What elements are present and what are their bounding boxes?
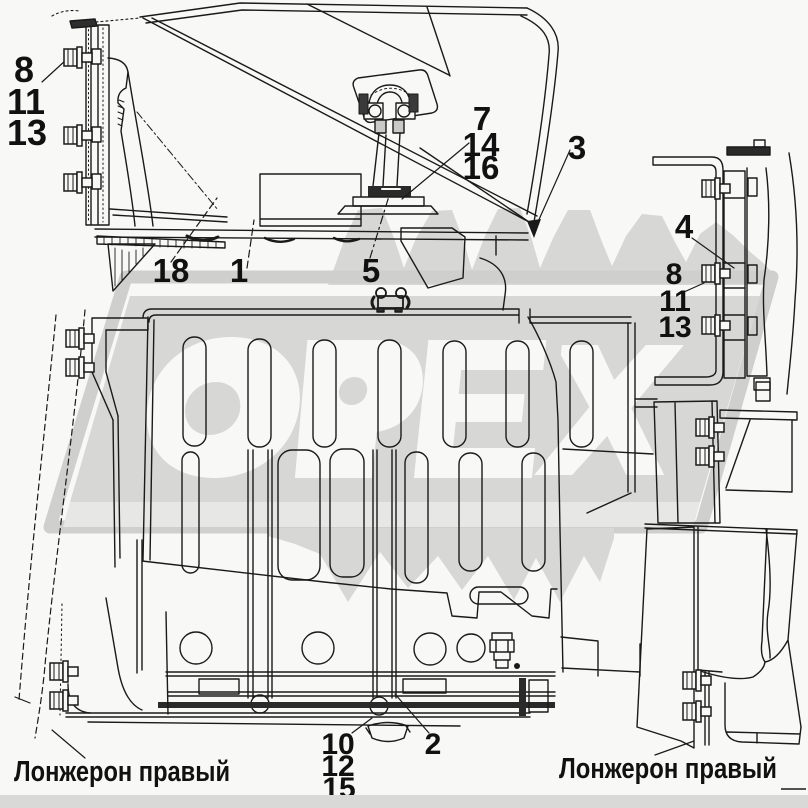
svg-text:13: 13 <box>658 311 691 344</box>
svg-text:Лонжерон правый: Лонжерон правый <box>559 753 777 785</box>
svg-text:18: 18 <box>153 252 190 289</box>
svg-text:1: 1 <box>230 252 248 289</box>
svg-text:16: 16 <box>463 149 500 186</box>
svg-text:4: 4 <box>675 208 694 245</box>
svg-text:2: 2 <box>425 728 442 761</box>
svg-text:3: 3 <box>568 129 586 166</box>
svg-text:13: 13 <box>7 112 47 153</box>
svg-text:Лонжерон правый: Лонжерон правый <box>14 756 230 788</box>
svg-text:5: 5 <box>362 252 380 289</box>
